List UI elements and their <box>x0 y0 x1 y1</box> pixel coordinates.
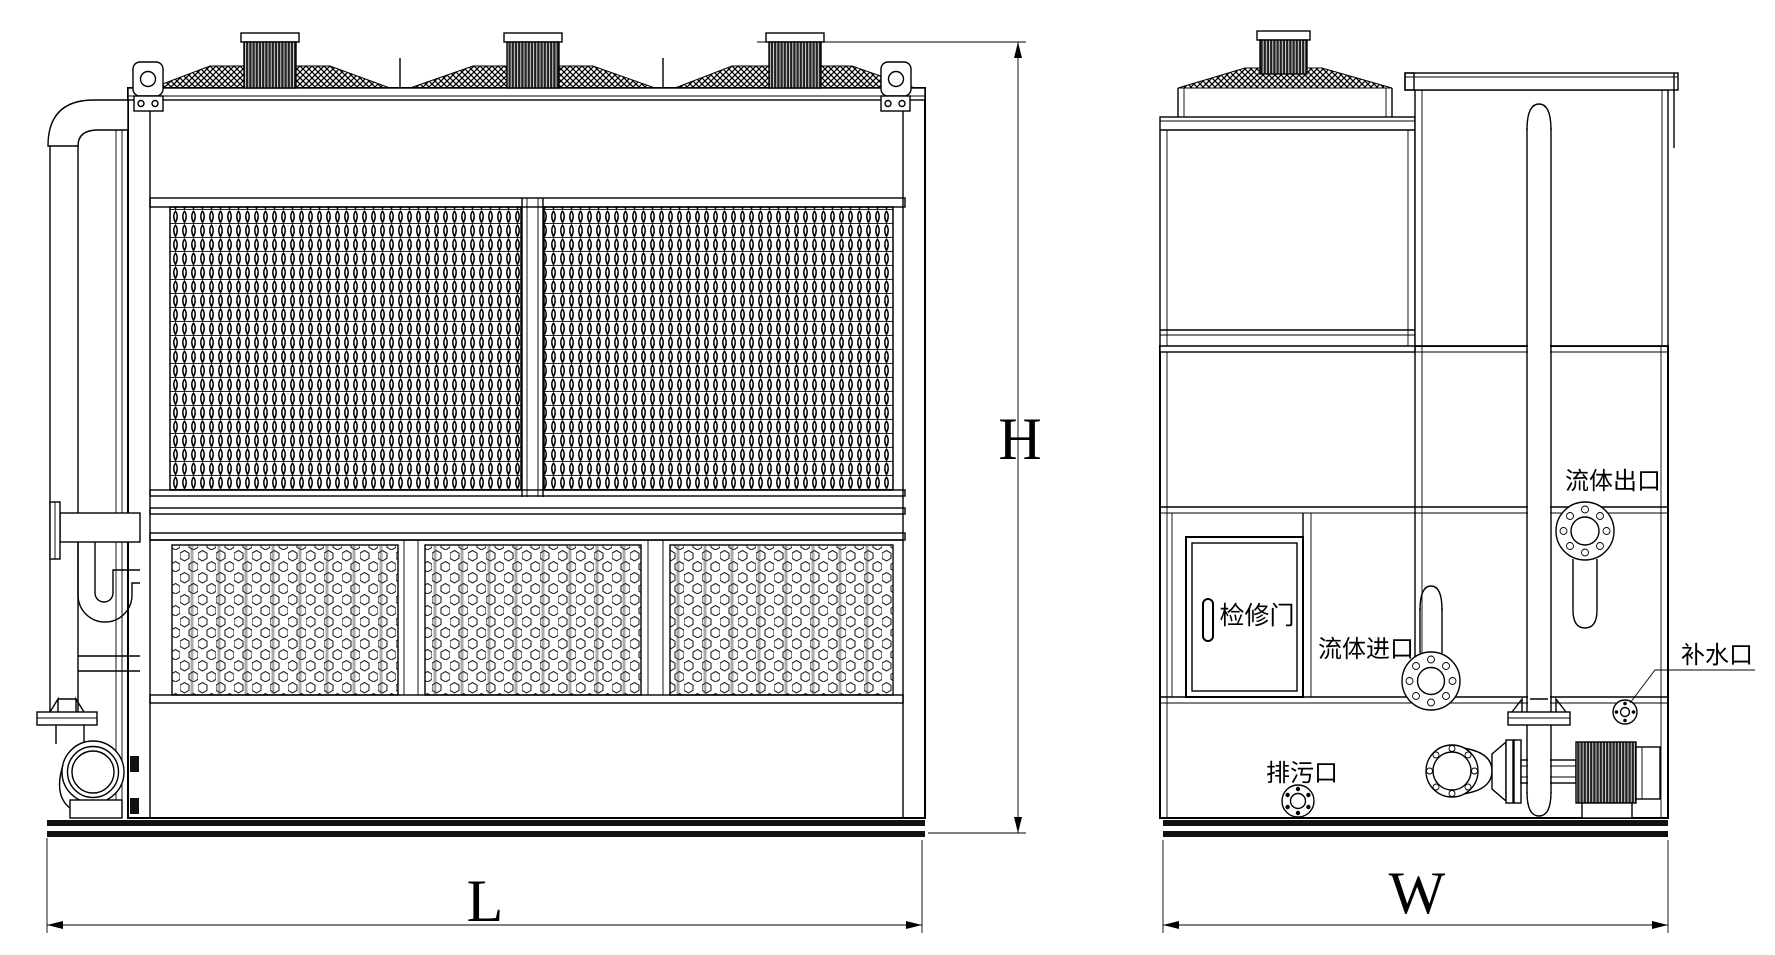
front-base-frame <box>47 820 925 837</box>
coil-panel-right <box>544 207 893 490</box>
side-view: 检修门 <box>1160 31 1755 837</box>
access-door-label: 检修门 <box>1219 601 1294 630</box>
height-dimension-label: H <box>998 406 1041 472</box>
drawing-canvas: 检修门 <box>0 0 1775 955</box>
lifting-lug-left <box>133 62 163 111</box>
pipe-support-stand <box>37 699 97 744</box>
front-view <box>37 33 925 837</box>
lifting-lug-right <box>881 62 911 111</box>
pump-base-block <box>70 800 122 818</box>
coil-panel-left <box>170 207 521 490</box>
louver-section <box>150 540 903 703</box>
cooling-tower-technical-drawing: 检修门 <box>0 0 1775 955</box>
dimension-W: W <box>1163 840 1668 933</box>
fluid-inlet-label: 流体进口 <box>1318 635 1414 663</box>
side-fan-box <box>1160 31 1415 352</box>
duct-top-cap <box>1405 73 1678 90</box>
external-piping <box>37 100 140 818</box>
mid-branch-pipe <box>60 513 140 542</box>
side-fan-motor <box>1260 40 1307 74</box>
width-dimension-label: W <box>1389 860 1446 926</box>
fluid-outlet-label: 流体出口 <box>1565 467 1661 495</box>
fluid-outlet-flange <box>1556 502 1614 560</box>
pump-suction-flange <box>1426 745 1478 797</box>
fan-motor-3 <box>766 33 824 88</box>
drain-port-label: 排污口 <box>1266 759 1338 787</box>
length-dimension-label: L <box>467 868 504 934</box>
top-rail <box>128 88 925 100</box>
fan-motor-2 <box>504 33 562 88</box>
fan-assembly-row <box>152 33 915 88</box>
motor-foot <box>1582 803 1632 818</box>
fan-motor-1 <box>241 33 299 88</box>
side-base-frame <box>1163 820 1668 837</box>
dimension-L: L <box>47 838 922 934</box>
makeup-water-label: 补水口 <box>1681 641 1753 669</box>
